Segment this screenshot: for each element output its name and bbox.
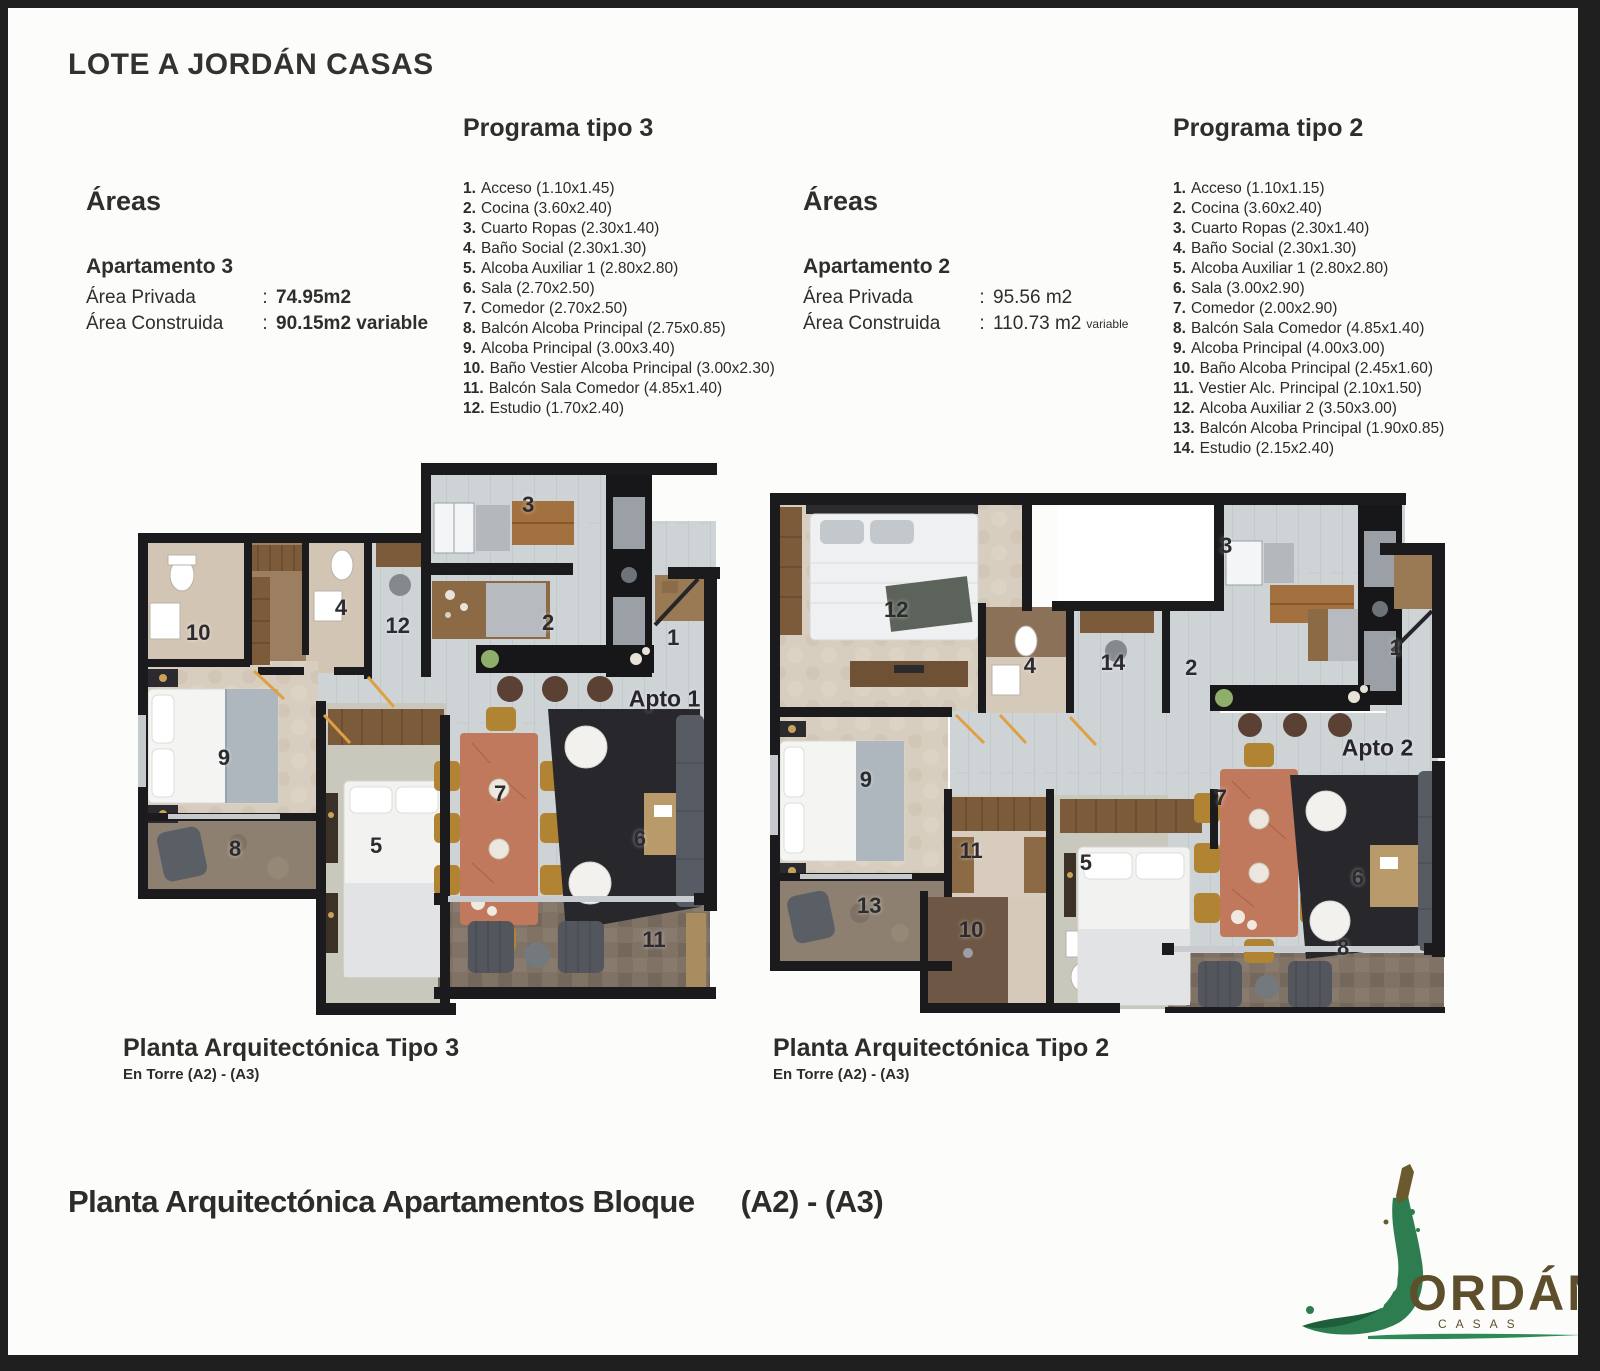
plan-sheet: LOTE A JORDÁN CASAS Programa tipo 3 1.Ac… bbox=[8, 8, 1578, 1355]
room-label: 3 bbox=[1220, 533, 1232, 559]
room-label: 7 bbox=[1215, 785, 1227, 811]
caption-tipo3: Planta Arquitectónica Tipo 3 En Torre (A… bbox=[123, 1034, 459, 1083]
room-label: 6 bbox=[634, 826, 646, 852]
sheet-title: Planta Arquitectónica Apartamentos Bloqu… bbox=[68, 1184, 883, 1220]
programa-item: 1.Acceso (1.10x1.45) bbox=[463, 179, 833, 199]
room-label: 4 bbox=[335, 595, 347, 621]
programa-item: 10.Baño Alcoba Principal (2.45x1.60) bbox=[1173, 359, 1543, 379]
sheet-title-text: Planta Arquitectónica Apartamentos Bloqu… bbox=[68, 1184, 695, 1219]
room-label: 12 bbox=[884, 597, 908, 623]
plan2-labels: 12341421Apto 291157613108 bbox=[770, 493, 1445, 1013]
room-label: 9 bbox=[218, 745, 230, 771]
programa-tipo-2-list: 1.Acceso (1.10x1.15)2.Cocina (3.60x2.40)… bbox=[1173, 179, 1543, 459]
room-label: 5 bbox=[1080, 850, 1092, 876]
programa-item: 9.Alcoba Principal (3.00x3.40) bbox=[463, 339, 833, 359]
programa-item: 7.Comedor (2.70x2.50) bbox=[463, 299, 833, 319]
logo-splash bbox=[1302, 1196, 1423, 1335]
area-row: Área Construida:110.73 m2variable bbox=[803, 311, 1128, 340]
areas-subheading: Apartamento 3 bbox=[86, 255, 433, 279]
jordan-logo: ORDÁN CASAS bbox=[1290, 1160, 1578, 1350]
room-label: 8 bbox=[229, 836, 241, 862]
areas-rows: Área Privada:95.56 m2 Área Construida:11… bbox=[803, 285, 1128, 340]
sheet-title-block-codes: (A2) - (A3) bbox=[741, 1184, 884, 1219]
room-label: 2 bbox=[1185, 655, 1197, 681]
logo-underline bbox=[1368, 1334, 1578, 1339]
logo-splash-drip bbox=[1396, 1164, 1414, 1204]
jordan-logo-graphic: ORDÁN CASAS bbox=[1290, 1160, 1578, 1350]
programa-tipo-3-list: 1.Acceso (1.10x1.45)2.Cocina (3.60x2.40)… bbox=[463, 179, 833, 419]
programa-item: 7.Comedor (2.00x2.90) bbox=[1173, 299, 1543, 319]
programa-item: 10.Baño Vestier Alcoba Principal (3.00x2… bbox=[463, 359, 833, 379]
areas-rows: Área Privada:74.95m2 Área Construida:90.… bbox=[86, 285, 433, 337]
programa-item: 8.Balcón Sala Comedor (4.85x1.40) bbox=[1173, 319, 1543, 339]
area-row: Área Privada:74.95m2 bbox=[86, 285, 433, 311]
room-label: 6 bbox=[1352, 865, 1364, 891]
caption-tipo2-sub: En Torre (A2) - (A3) bbox=[773, 1066, 1109, 1083]
programa-item: 5.Alcoba Auxiliar 1 (2.80x2.80) bbox=[1173, 259, 1543, 279]
caption-tipo3-title: Planta Arquitectónica Tipo 3 bbox=[123, 1034, 459, 1063]
programa-item: 3.Cuarto Ropas (2.30x1.40) bbox=[1173, 219, 1543, 239]
programa-tipo-2: Programa tipo 2 1.Acceso (1.10x1.15)2.Co… bbox=[1173, 114, 1543, 459]
programa-item: 2.Cocina (3.60x2.40) bbox=[463, 199, 833, 219]
areas-apartamento-3: Áreas Apartamento 3 Área Privada:74.95m2… bbox=[86, 186, 433, 337]
programa-item: 13.Balcón Alcoba Principal (1.90x0.85) bbox=[1173, 419, 1543, 439]
programa-item: 11.Balcón Sala Comedor (4.85x1.40) bbox=[463, 379, 833, 399]
room-label: 14 bbox=[1101, 650, 1125, 676]
programa-item: 6.Sala (3.00x2.90) bbox=[1173, 279, 1543, 299]
areas-apartamento-2: Áreas Apartamento 2 Área Privada:95.56 m… bbox=[803, 186, 1128, 340]
programa-item: 11.Vestier Alc. Principal (2.10x1.50) bbox=[1173, 379, 1543, 399]
programa-tipo-2-heading: Programa tipo 2 bbox=[1173, 114, 1543, 143]
logo-wordmark: ORDÁN bbox=[1408, 1265, 1578, 1321]
room-label: Apto 1 bbox=[629, 685, 701, 712]
room-label: 2 bbox=[542, 610, 554, 636]
area-row: Área Privada:95.56 m2 bbox=[803, 285, 1128, 311]
programa-item: 8.Balcón Alcoba Principal (2.75x0.85) bbox=[463, 319, 833, 339]
room-label: 12 bbox=[385, 613, 409, 639]
room-label: 11 bbox=[642, 927, 665, 953]
caption-tipo3-sub: En Torre (A2) - (A3) bbox=[123, 1066, 459, 1083]
programa-item: 6.Sala (2.70x2.50) bbox=[463, 279, 833, 299]
room-label: 13 bbox=[857, 893, 881, 919]
room-label: 3 bbox=[522, 492, 534, 518]
programa-item: 4.Baño Social (2.30x1.30) bbox=[1173, 239, 1543, 259]
programa-item: 4.Baño Social (2.30x1.30) bbox=[463, 239, 833, 259]
room-label: 1 bbox=[667, 625, 679, 651]
programa-item: 12.Alcoba Auxiliar 2 (3.50x3.00) bbox=[1173, 399, 1543, 419]
room-label: 7 bbox=[494, 781, 506, 807]
caption-tipo2: Planta Arquitectónica Tipo 2 En Torre (A… bbox=[773, 1034, 1109, 1083]
areas-heading: Áreas bbox=[86, 186, 433, 217]
programa-item: 3.Cuarto Ropas (2.30x1.40) bbox=[463, 219, 833, 239]
programa-item: 2.Cocina (3.60x2.40) bbox=[1173, 199, 1543, 219]
programa-tipo-3: Programa tipo 3 1.Acceso (1.10x1.45)2.Co… bbox=[463, 114, 833, 419]
page-title: LOTE A JORDÁN CASAS bbox=[68, 48, 434, 82]
room-label: 10 bbox=[186, 620, 210, 646]
caption-tipo2-title: Planta Arquitectónica Tipo 2 bbox=[773, 1034, 1109, 1063]
areas-heading: Áreas bbox=[803, 186, 1128, 217]
programa-item: 1.Acceso (1.10x1.15) bbox=[1173, 179, 1543, 199]
programa-tipo-3-heading: Programa tipo 3 bbox=[463, 114, 833, 143]
room-label: 1 bbox=[1390, 635, 1402, 661]
areas-subheading: Apartamento 2 bbox=[803, 255, 1128, 279]
programa-item: 9.Alcoba Principal (4.00x3.00) bbox=[1173, 339, 1543, 359]
programa-item: 5.Alcoba Auxiliar 1 (2.80x2.80) bbox=[463, 259, 833, 279]
programa-item: 12.Estudio (1.70x2.40) bbox=[463, 399, 833, 419]
area-row: Área Construida:90.15m2 variable bbox=[86, 311, 433, 337]
room-label: 8 bbox=[1337, 935, 1349, 961]
room-label: 10 bbox=[959, 917, 983, 943]
plan1-labels: 321Apto 1410129576811 bbox=[138, 463, 723, 1018]
room-label: 11 bbox=[960, 838, 983, 864]
programa-item: 14.Estudio (2.15x2.40) bbox=[1173, 439, 1543, 459]
room-label: 4 bbox=[1024, 653, 1036, 679]
room-label: 5 bbox=[370, 833, 382, 859]
room-label: 9 bbox=[860, 767, 872, 793]
room-label: Apto 2 bbox=[1342, 734, 1414, 761]
logo-sub: CASAS bbox=[1438, 1317, 1524, 1331]
